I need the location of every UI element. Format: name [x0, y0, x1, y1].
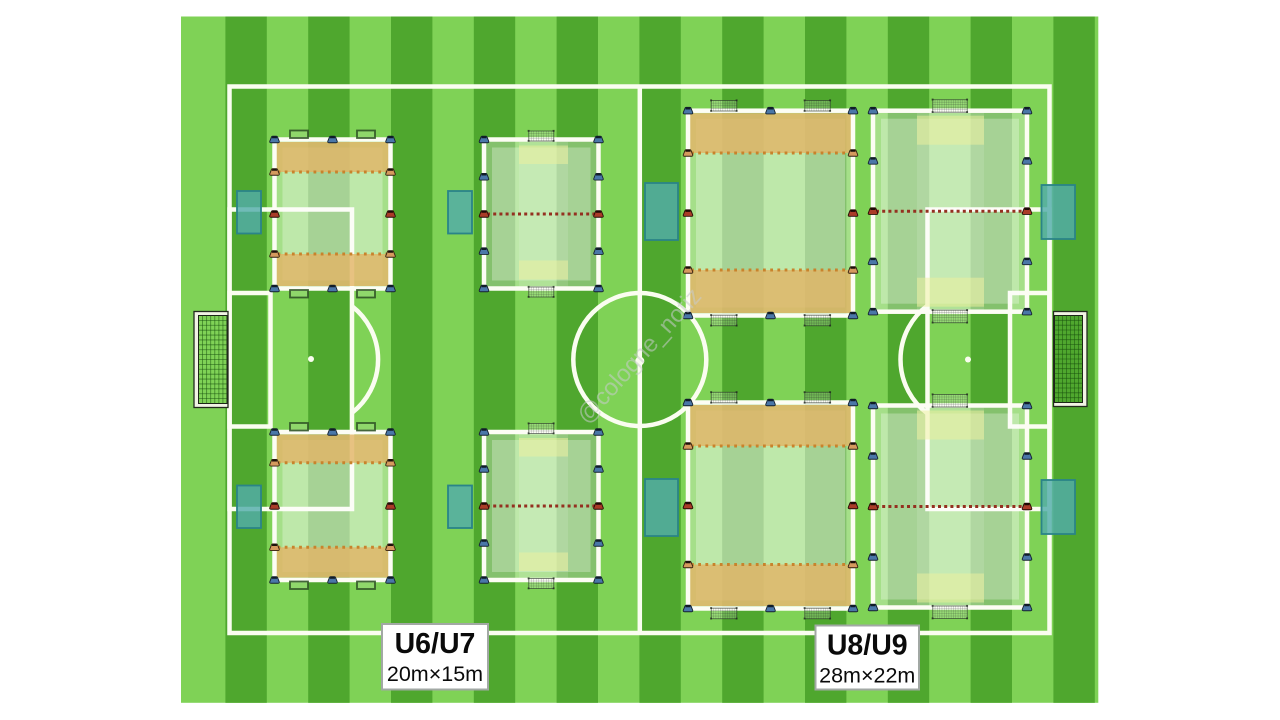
svg-text:28m×22m: 28m×22m	[819, 664, 915, 688]
svg-text:U6/U7: U6/U7	[395, 628, 476, 660]
svg-text:20m×15m: 20m×15m	[387, 662, 483, 686]
svg-text:U8/U9: U8/U9	[827, 630, 908, 662]
